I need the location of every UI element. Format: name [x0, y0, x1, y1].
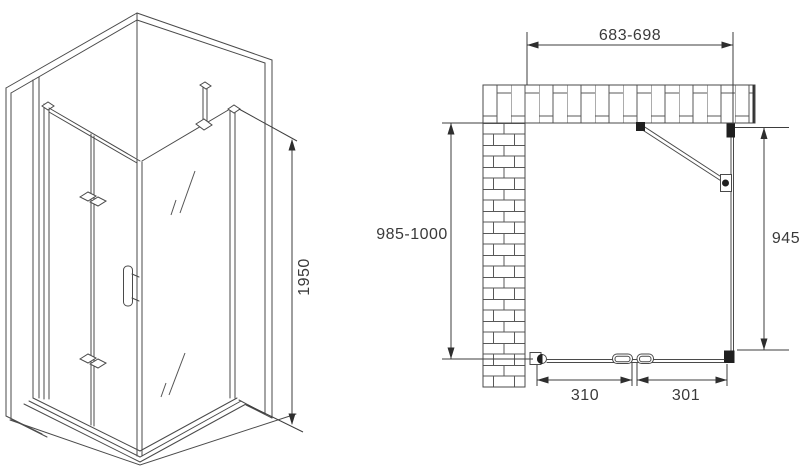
- iso-height-dimension: 1950: [239, 109, 313, 432]
- plan-door-track: [530, 353, 724, 365]
- right-dim-arrow-down: [761, 339, 768, 351]
- height-arrow-up: [289, 139, 296, 151]
- left-dim-arrow-up: [448, 123, 455, 135]
- left-wall-top-inner: [11, 20, 137, 93]
- front-corner-post: [137, 159, 142, 456]
- right-wall-top-outer: [137, 13, 272, 60]
- height-dim-label: 1950: [296, 258, 313, 296]
- support-bar-wall-mount: [637, 123, 645, 131]
- iso-enclosure: [42, 82, 240, 456]
- side-panel-glass: [731, 137, 734, 352]
- plan-right-dimension: 945: [735, 128, 800, 351]
- height-ext-bottom: [248, 405, 303, 432]
- door-top-edge-inner: [49, 112, 137, 163]
- left-dim-arrow-down: [448, 348, 455, 360]
- bottom-right-arrow-b: [716, 377, 728, 384]
- bifold-fold-line: [91, 134, 94, 426]
- hinge-pin-half: [538, 355, 543, 364]
- glass-reflection-lower: [161, 353, 185, 397]
- bottom-right-door-label: 301: [672, 387, 700, 404]
- top-dim-arrow-left: [527, 42, 539, 49]
- door-handle-bar: [124, 266, 133, 306]
- door-handle-stubs: [132, 274, 139, 301]
- support-bar-pivot: [723, 180, 729, 186]
- right-dim-arrow-up: [761, 128, 768, 140]
- plan-walls: [483, 85, 755, 387]
- door-knob-left-inner: [615, 356, 630, 362]
- plan-view: 683-698 985-1000 945 310: [376, 27, 800, 404]
- right-wall-top-inner: [137, 20, 265, 63]
- isometric-view: 1950: [6, 13, 313, 465]
- left-depth-label: 985-1000: [376, 226, 448, 243]
- track-front-edge: [24, 404, 246, 462]
- plan-side-panel: [725, 124, 735, 363]
- side-panel-top-edge: [142, 109, 230, 161]
- door-knob-right-inner: [640, 356, 652, 362]
- bottom-left-arrow-a: [537, 377, 549, 384]
- bottom-dim-ext-lines: [537, 363, 727, 386]
- top-width-label: 683-698: [599, 27, 661, 44]
- right-panel-label: 945: [772, 230, 800, 247]
- left-wall-profile: [44, 104, 49, 399]
- support-bar: [203, 87, 207, 123]
- drawing-svg: 1950: [0, 0, 800, 467]
- bottom-left-door-label: 310: [571, 387, 599, 404]
- shower-enclosure-technical-drawing: 1950: [0, 0, 800, 467]
- left-wall-base: [6, 416, 47, 437]
- top-dim-arrow-right: [722, 42, 734, 49]
- left-wall: [483, 123, 525, 387]
- height-arrow-down: [289, 414, 296, 426]
- bottom-left-arrow-b: [621, 377, 633, 384]
- floor-edge: [10, 414, 296, 465]
- support-bar-rod: [641, 127, 725, 182]
- corner-bracket: [725, 351, 735, 363]
- right-wall-post: [230, 108, 235, 398]
- height-ext-top: [239, 109, 297, 141]
- top-wall: [483, 85, 755, 123]
- left-wall-top-outer: [6, 13, 137, 88]
- plan-bottom-dimensions: 310 301: [537, 363, 727, 404]
- door-track: [547, 360, 724, 363]
- iso-bottom-track: [24, 398, 246, 462]
- plan-support-bar: [637, 123, 732, 192]
- bottom-right-arrow-a: [637, 377, 649, 384]
- side-panel-wall-profile: [727, 124, 735, 137]
- support-bar-top-cap: [200, 82, 211, 89]
- glass-reflection-upper: [171, 171, 195, 215]
